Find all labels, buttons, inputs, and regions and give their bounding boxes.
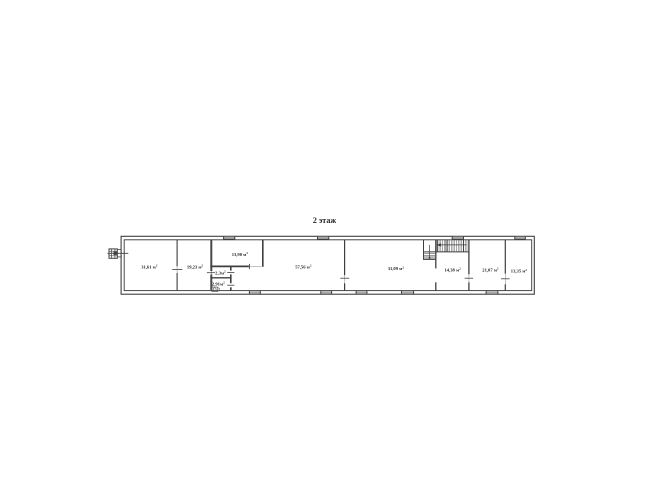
svg-text:19,23 м2: 19,23 м2 [187,264,204,270]
svg-text:14,38 м2: 14,38 м2 [444,267,461,273]
svg-text:2 этаж: 2 этаж [313,216,336,225]
svg-text:13,35 м2: 13,35 м2 [511,268,528,274]
svg-text:13,90 м2: 13,90 м2 [232,251,249,257]
svg-text:21,07 м2: 21,07 м2 [482,267,499,273]
svg-text:31,61 м2: 31,61 м2 [141,264,158,270]
svg-text:31,09 м2: 31,09 м2 [388,265,405,271]
svg-text:2,91м2: 2,91м2 [212,281,225,287]
svg-text:2,3м2: 2,3м2 [215,270,226,276]
svg-text:57,56 м2: 57,56 м2 [295,264,312,270]
